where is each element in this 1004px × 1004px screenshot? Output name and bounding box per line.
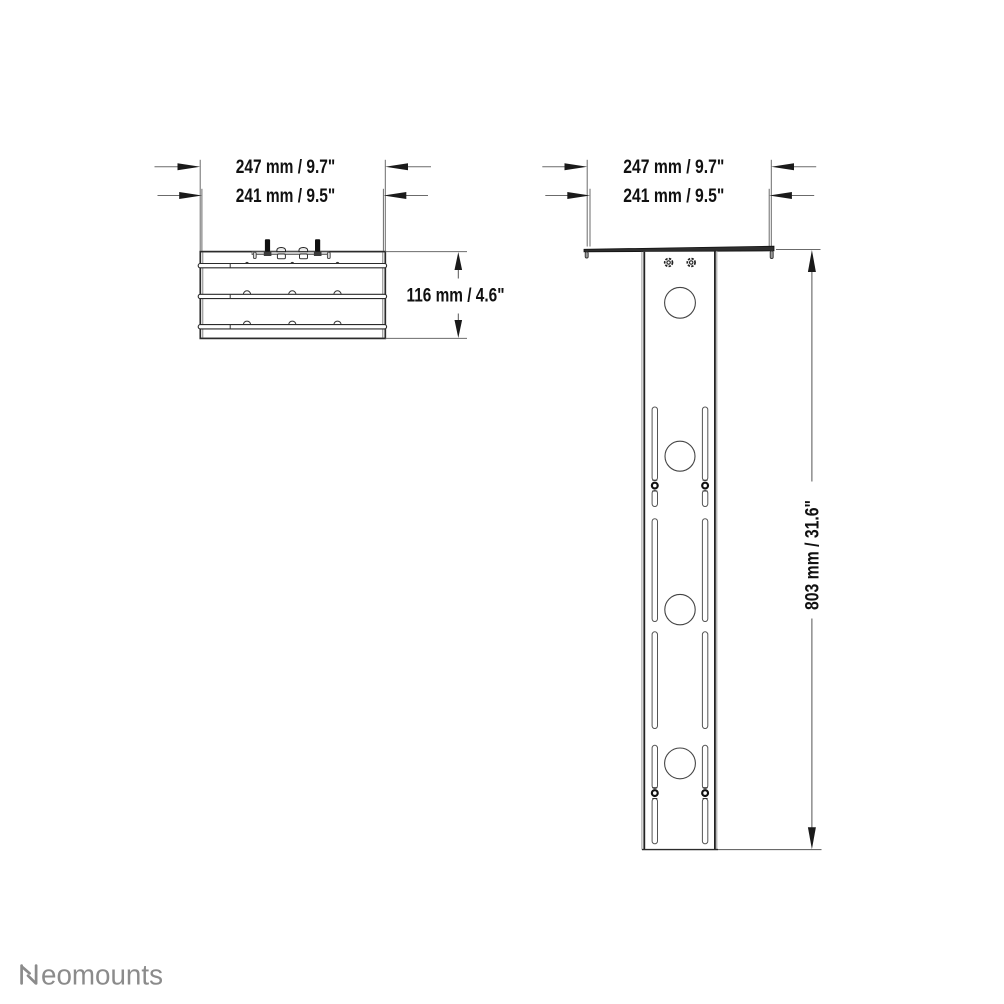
- svg-text:247 mm / 9.7": 247 mm / 9.7": [236, 157, 336, 178]
- svg-text:eomounts: eomounts: [41, 959, 163, 991]
- svg-text:241 mm / 9.5": 241 mm / 9.5": [623, 186, 724, 207]
- svg-text:247 mm / 9.7": 247 mm / 9.7": [623, 157, 724, 178]
- svg-text:803 mm / 31.6": 803 mm / 31.6": [802, 500, 823, 610]
- svg-text:241 mm / 9.5": 241 mm / 9.5": [236, 186, 336, 207]
- svg-text:116 mm / 4.6": 116 mm / 4.6": [407, 285, 505, 306]
